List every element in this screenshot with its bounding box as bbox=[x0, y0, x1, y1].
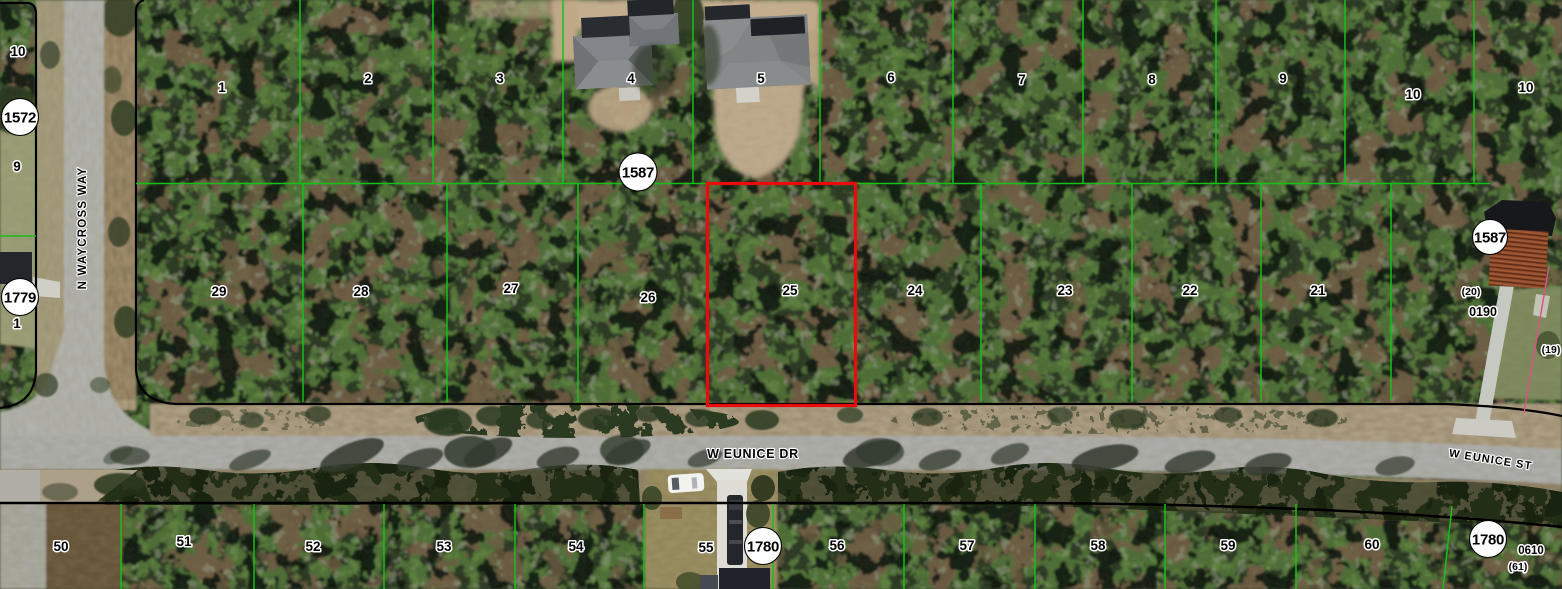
svg-text:10: 10 bbox=[1405, 87, 1420, 102]
svg-text:9: 9 bbox=[13, 159, 21, 174]
svg-text:5: 5 bbox=[757, 71, 765, 86]
svg-text:57: 57 bbox=[959, 538, 974, 553]
svg-text:53: 53 bbox=[436, 539, 452, 554]
svg-text:24: 24 bbox=[907, 283, 923, 298]
svg-text:1: 1 bbox=[13, 316, 21, 331]
svg-text:58: 58 bbox=[1090, 538, 1106, 553]
svg-text:28: 28 bbox=[353, 284, 369, 299]
svg-text:29: 29 bbox=[211, 284, 226, 299]
svg-text:(20): (20) bbox=[1462, 286, 1481, 298]
svg-text:59: 59 bbox=[1220, 538, 1235, 553]
svg-text:60: 60 bbox=[1364, 537, 1379, 552]
svg-text:1780: 1780 bbox=[747, 539, 779, 556]
svg-text:26: 26 bbox=[640, 290, 656, 305]
svg-text:W EUNICE DR: W EUNICE DR bbox=[707, 447, 799, 461]
svg-text:(61): (61) bbox=[1509, 561, 1528, 573]
svg-text:(19): (19) bbox=[1542, 344, 1561, 356]
svg-text:4: 4 bbox=[627, 71, 635, 86]
svg-text:8: 8 bbox=[1148, 72, 1156, 87]
svg-text:1587: 1587 bbox=[1474, 230, 1506, 247]
svg-text:2: 2 bbox=[364, 71, 372, 86]
svg-text:0190: 0190 bbox=[1469, 305, 1497, 319]
svg-text:1779: 1779 bbox=[4, 290, 36, 307]
svg-text:9: 9 bbox=[1279, 71, 1287, 86]
svg-text:51: 51 bbox=[176, 534, 192, 549]
svg-text:56: 56 bbox=[829, 538, 845, 553]
svg-text:3: 3 bbox=[496, 71, 504, 86]
svg-text:7: 7 bbox=[1018, 72, 1026, 87]
svg-text:1572: 1572 bbox=[4, 110, 36, 127]
svg-text:10: 10 bbox=[1518, 80, 1533, 95]
svg-text:54: 54 bbox=[568, 539, 584, 554]
svg-text:0610: 0610 bbox=[1518, 545, 1544, 557]
svg-text:6: 6 bbox=[887, 70, 895, 85]
svg-text:52: 52 bbox=[305, 539, 320, 554]
svg-text:1: 1 bbox=[218, 80, 226, 95]
svg-text:55: 55 bbox=[698, 540, 714, 555]
svg-text:10: 10 bbox=[10, 44, 25, 59]
svg-text:50: 50 bbox=[53, 539, 68, 554]
svg-text:22: 22 bbox=[1182, 283, 1197, 298]
svg-text:23: 23 bbox=[1057, 283, 1073, 298]
svg-text:1780: 1780 bbox=[1472, 532, 1504, 549]
svg-text:25: 25 bbox=[782, 283, 798, 298]
svg-text:21: 21 bbox=[1310, 283, 1326, 298]
svg-text:27: 27 bbox=[503, 281, 518, 296]
svg-text:1587: 1587 bbox=[622, 165, 654, 182]
svg-text:N WAYCROSS WAY: N WAYCROSS WAY bbox=[77, 167, 89, 290]
